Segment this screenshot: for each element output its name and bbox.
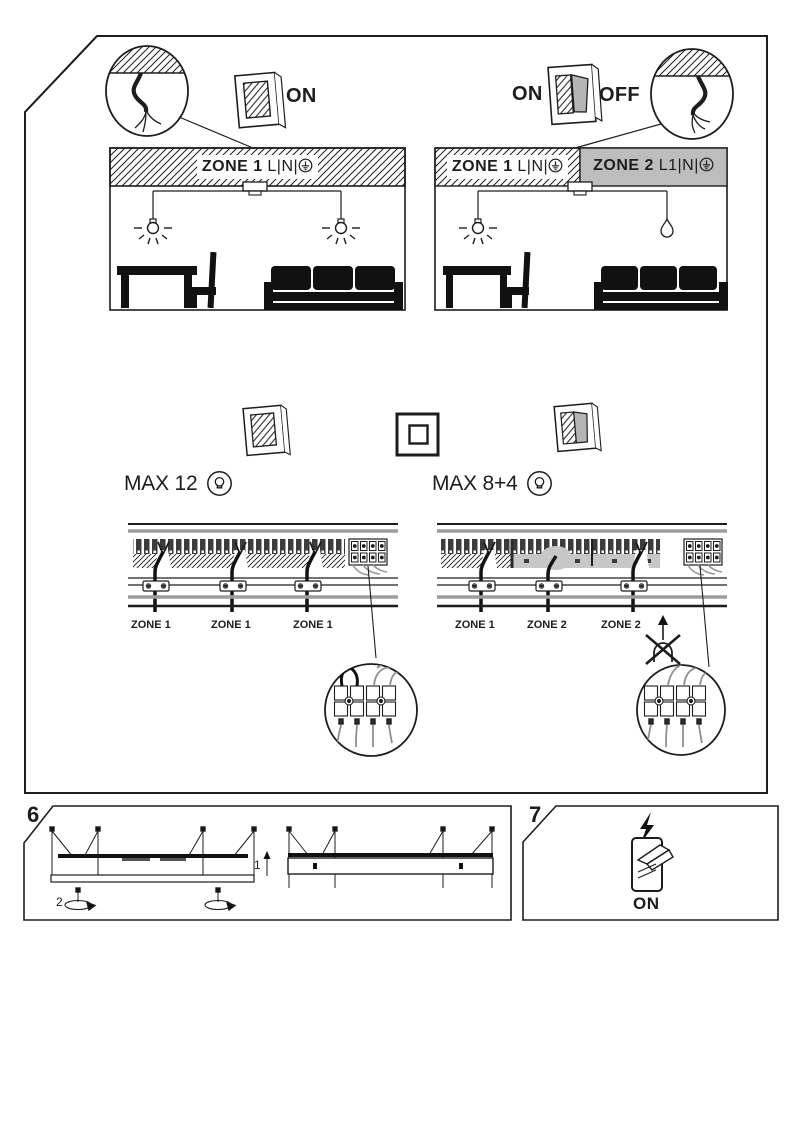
max-spots-label-right: MAX 8+4 [432,470,553,497]
zone2-ceiling-label: ZONE 2 L1|N| [580,155,727,177]
earth-icon [548,158,563,173]
step6-marker-1: 1 [254,858,261,872]
zone-terminals: L|N| [517,158,548,175]
step6-number: 6 [27,802,40,828]
zone-wire-label: ZONE 2 [527,619,567,631]
switch-off-label-right: OFF [599,84,640,107]
zone1-ceiling-label-right: ZONE 1 L|N| [435,155,580,179]
max-text: MAX 8+4 [432,472,518,496]
zone-wire-label: ZONE 2 [601,619,641,631]
zone-terminals: L|N| [267,158,298,175]
switch-picto-front [397,414,438,455]
power-on-label: ON [633,894,660,914]
earth-icon [699,157,714,172]
bulb-icon [206,470,233,497]
bulb-icon [526,470,553,497]
max-spots-label-left: MAX 12 [124,470,233,497]
switch-on-label-right: ON [512,83,543,106]
zone-wire-label: ZONE 1 [293,619,333,631]
wiring-diagram-right [437,524,727,755]
zone-wire-label: ZONE 1 [131,619,171,631]
dimmer-switch-zone1 [235,72,286,132]
step6-marker-2: 2 [56,895,63,909]
step6-panel [24,806,511,920]
switch-on-label-left: ON [286,85,317,108]
manual-page: ON ON OFF ZONE 1 L|N| ZONE 1 L|N| ZONE 2… [0,0,793,1122]
zone1-ceiling-label-left: ZONE 1 L|N| [110,155,405,179]
max-text: MAX 12 [124,472,198,496]
earth-icon [298,158,313,173]
zone-wire-label: ZONE 1 [211,619,251,631]
zone-terminals: L1|N| [659,157,699,174]
cable-detail-circle-left [104,45,253,148]
zone-name: ZONE 2 [593,157,654,174]
switch-picto-one-zone [243,405,290,459]
zone-name: ZONE 1 [202,158,263,175]
wiring-diagram-left [128,524,417,756]
step7-number: 7 [529,802,542,828]
zone-name: ZONE 1 [452,158,513,175]
switch-picto-two-zones [554,403,601,455]
zone-wire-label: ZONE 1 [455,619,495,631]
dimmer-switch-two-zones [548,64,602,124]
up-arrow-icon [658,615,668,640]
